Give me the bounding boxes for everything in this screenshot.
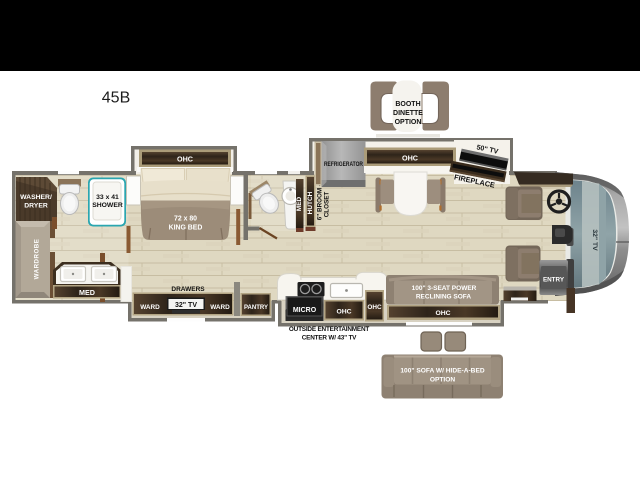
svg-text:72 x 80: 72 x 80 bbox=[174, 216, 197, 223]
svg-text:OHC: OHC bbox=[402, 154, 418, 163]
svg-text:DRAWERS: DRAWERS bbox=[171, 286, 205, 293]
svg-text:KING BED: KING BED bbox=[169, 225, 203, 232]
svg-text:ENTRY: ENTRY bbox=[543, 277, 565, 284]
svg-text:OPTION: OPTION bbox=[395, 119, 422, 126]
svg-text:OHC: OHC bbox=[367, 304, 382, 311]
svg-text:DRYER: DRYER bbox=[24, 203, 48, 210]
svg-text:MICRO: MICRO bbox=[293, 307, 317, 314]
svg-text:100" 3-SEAT POWER: 100" 3-SEAT POWER bbox=[412, 285, 477, 292]
svg-text:SHOWER: SHOWER bbox=[92, 202, 123, 209]
svg-text:DINETTE: DINETTE bbox=[393, 110, 423, 117]
svg-text:45B: 45B bbox=[102, 90, 130, 107]
svg-text:WASHER/: WASHER/ bbox=[20, 194, 52, 201]
svg-text:PANTRY: PANTRY bbox=[244, 305, 268, 311]
svg-text:100" SOFA W/ HIDE-A-BED: 100" SOFA W/ HIDE-A-BED bbox=[400, 368, 484, 375]
svg-text:WARD: WARD bbox=[140, 304, 160, 311]
svg-text:32" TV: 32" TV bbox=[175, 302, 197, 309]
svg-text:BOOTH: BOOTH bbox=[395, 101, 420, 108]
svg-text:OUTSIDE ENTERTAINMENT: OUTSIDE ENTERTAINMENT bbox=[289, 326, 369, 333]
svg-text:MED: MED bbox=[79, 288, 95, 297]
svg-text:HUTCH: HUTCH bbox=[307, 191, 314, 214]
svg-text:MED: MED bbox=[296, 197, 303, 212]
svg-text:33 x 41: 33 x 41 bbox=[96, 194, 119, 201]
svg-text:REFRIGERATOR: REFRIGERATOR bbox=[324, 161, 363, 168]
svg-text:OHC: OHC bbox=[177, 155, 193, 164]
svg-text:OHC: OHC bbox=[435, 310, 450, 317]
svg-text:OPTION: OPTION bbox=[430, 377, 456, 384]
svg-text:RECLINING SOFA: RECLINING SOFA bbox=[416, 294, 472, 301]
svg-text:WARDROBE: WARDROBE bbox=[34, 239, 41, 280]
svg-text:CENTER W/ 43" TV: CENTER W/ 43" TV bbox=[302, 335, 357, 342]
svg-text:CLOSET: CLOSET bbox=[323, 192, 330, 218]
svg-text:32" TV: 32" TV bbox=[591, 229, 598, 251]
svg-text:WARD: WARD bbox=[210, 304, 230, 311]
svg-text:OHC: OHC bbox=[336, 309, 351, 316]
